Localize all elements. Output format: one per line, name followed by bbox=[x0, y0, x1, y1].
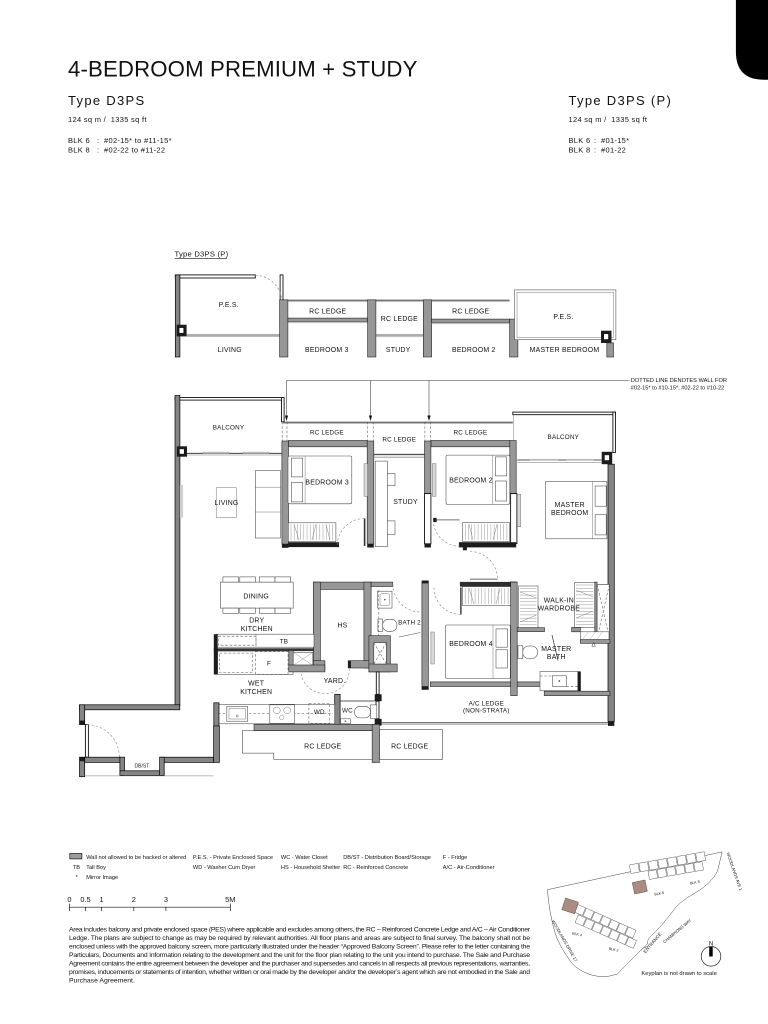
svg-text:Agreement contains the entire: Agreement contains the entire agreement … bbox=[69, 961, 530, 968]
svg-text:enclosed unless with the appro: enclosed unless with the approved balcon… bbox=[69, 943, 530, 950]
svg-text:Purchase Agreement.: Purchase Agreement. bbox=[69, 978, 135, 985]
svg-text:Ledge. The plans are subject t: Ledge. The plans are subject to change a… bbox=[69, 935, 530, 942]
svg-text:Area includes balcony and priv: Area includes balcony and private enclos… bbox=[69, 926, 531, 933]
svg-text:promises, inducements or state: promises, inducements or statements of i… bbox=[69, 969, 530, 976]
svg-text:Particulars, Documents and Inf: Particulars, Documents and Information r… bbox=[69, 952, 530, 959]
